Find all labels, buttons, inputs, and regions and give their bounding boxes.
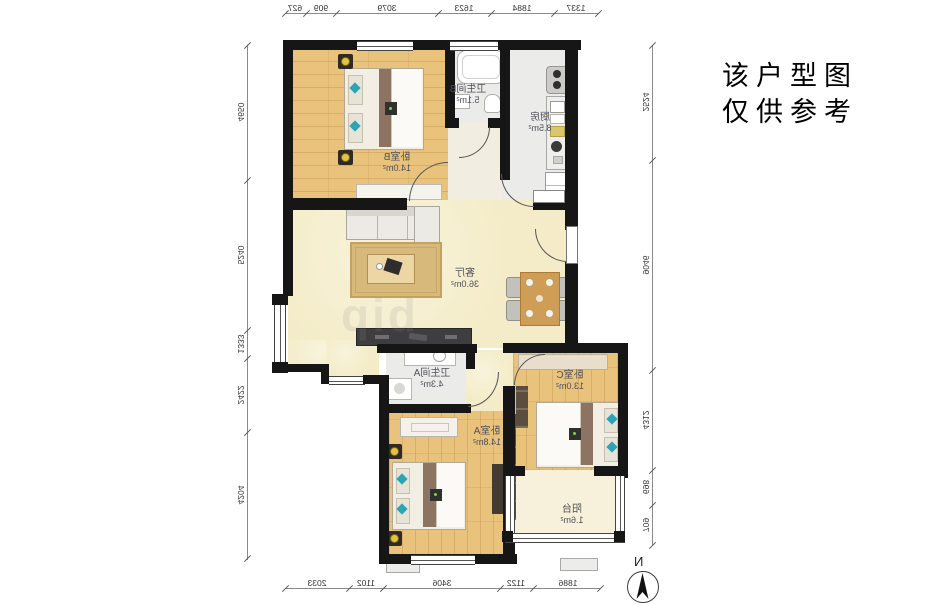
dim-label: 4204 [236, 473, 246, 517]
dimension-tick [244, 555, 251, 562]
entry-door-leaf [566, 226, 578, 264]
wall [466, 353, 475, 369]
balcony-window [505, 533, 625, 543]
window [411, 555, 475, 565]
bed-icon [536, 402, 622, 468]
bay-window-post [272, 294, 288, 305]
dim-chain-top [285, 13, 598, 14]
sink-icon [551, 141, 562, 152]
dim-label: 5240 [236, 233, 246, 277]
nightstand-icon [338, 54, 353, 69]
window [329, 376, 365, 385]
dim-label: 1884 [500, 3, 544, 13]
room-label-bedroom-c: 卧室C13.0m² [536, 370, 604, 392]
wardrobe-icon [492, 464, 503, 514]
balcony-post [614, 531, 625, 542]
laptop-icon [383, 258, 402, 275]
dim-label: 9046 [641, 243, 651, 287]
dim-chain-left [247, 45, 248, 560]
wardrobe-icon [516, 386, 528, 428]
bed-icon [392, 462, 466, 530]
blanket [580, 403, 593, 465]
dim-label: 1122 [494, 578, 538, 588]
watermark: bip [338, 288, 416, 342]
dim-label: 2033 [295, 578, 339, 588]
dim-label: 709 [641, 503, 651, 547]
wall [321, 364, 329, 384]
nightstand-icon [387, 531, 402, 546]
dim-label: 1623 [442, 3, 486, 13]
bay-window [274, 305, 286, 363]
wall [283, 40, 293, 296]
dim-label: 1886 [546, 578, 590, 588]
wall [379, 375, 389, 564]
dim-label: 3079 [365, 3, 409, 13]
bathtub-icon [457, 50, 505, 84]
nightstand-icon [338, 150, 353, 165]
wall [283, 198, 407, 210]
dimension-tick [597, 585, 604, 592]
room-label-bathroom-b: 卫生间B5.1m² [436, 84, 500, 106]
wall [377, 344, 477, 353]
dim-label: 2524 [641, 80, 651, 124]
bed-tray-icon [430, 489, 442, 501]
dim-label: 1337 [554, 3, 598, 13]
dim-label: 4312 [641, 398, 651, 442]
balcony-window [615, 476, 625, 534]
compass [627, 571, 659, 603]
room-label-kitchen: 厨房8.5m² [508, 112, 572, 134]
dim-label: 3406 [420, 578, 464, 588]
room-label-balcony: 阳台1.6m² [538, 504, 606, 526]
bed-icon [344, 68, 424, 150]
nightstand-icon [387, 444, 402, 459]
door-leaf [533, 190, 565, 203]
window [450, 41, 498, 51]
note-line-1: 该户型图 [722, 58, 892, 94]
dining-table-icon [520, 272, 560, 326]
dim-label: 4650 [236, 90, 246, 134]
bed-tray-icon [569, 428, 581, 440]
note-text: 该户型图 仅供参考 [722, 58, 892, 130]
wall [379, 404, 471, 413]
wall [445, 118, 459, 128]
north-label: N [634, 554, 643, 569]
dresser-icon [400, 417, 458, 437]
room-label-bedroom-a: 卧室A14.8m² [452, 426, 522, 448]
room-balcony-floor [511, 470, 619, 536]
wall [503, 466, 525, 476]
balcony-window [505, 476, 515, 534]
floor-plan: bip 卧室B14.0m² 卫生间B5.1m² 厨房8.5m² 客厅36.0m²… [0, 0, 941, 605]
room-label-bedroom-b: 卧室B14.0m² [362, 152, 432, 174]
north-arrow-icon [628, 572, 657, 601]
ac-unit-icon [560, 558, 598, 571]
room-living-floor-ext2 [327, 340, 379, 380]
window [357, 41, 413, 51]
dim-label: 2422 [236, 373, 246, 417]
wall [618, 343, 628, 478]
wall [594, 466, 628, 476]
room-label-bathroom-a: 卫生间A4.3m² [398, 368, 466, 390]
wall [565, 262, 578, 352]
note-line-2: 仅供参考 [722, 94, 892, 130]
wall [283, 40, 581, 50]
dim-label: 1333 [236, 322, 246, 366]
wall [500, 40, 510, 180]
wall [488, 118, 508, 128]
dim-label: 909 [299, 3, 343, 13]
room-label-living: 客厅36.0m² [432, 268, 498, 290]
wall [503, 343, 628, 353]
balcony-post [502, 531, 513, 542]
bed-tray-icon [385, 102, 397, 115]
coffee-table-icon [367, 254, 415, 284]
dim-chain-bottom [285, 588, 600, 589]
dim-label: 1102 [344, 578, 388, 588]
